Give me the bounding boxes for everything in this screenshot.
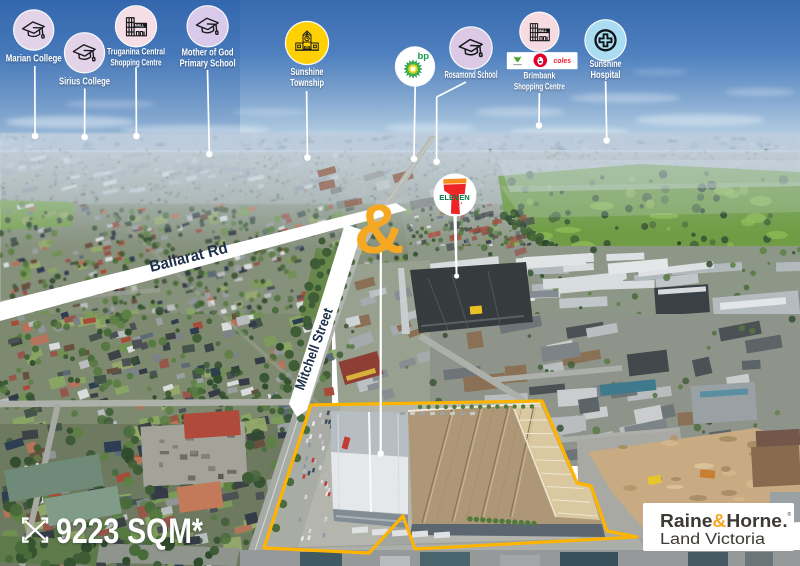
svg-text:Brimbank: Brimbank <box>523 71 556 82</box>
svg-text:Shopping Centre: Shopping Centre <box>111 57 162 67</box>
svg-text:9223 SQM*: 9223 SQM* <box>56 512 203 551</box>
svg-text:Sirius College: Sirius College <box>59 76 110 88</box>
svg-text:®: ® <box>788 511 792 518</box>
svg-text:Hospital: Hospital <box>591 69 621 81</box>
svg-text:MALL: MALL <box>135 24 144 28</box>
svg-text:Truganina Central: Truganina Central <box>107 47 165 57</box>
svg-text:Marian College: Marian College <box>6 53 62 65</box>
svg-text:bp: bp <box>418 51 430 62</box>
svg-text:Shopping Centre: Shopping Centre <box>514 81 565 92</box>
svg-text:Township: Township <box>290 77 324 89</box>
svg-text:Rosamond School: Rosamond School <box>445 69 498 81</box>
svg-text:&: & <box>354 190 405 268</box>
svg-text:Primary School: Primary School <box>180 57 236 69</box>
svg-text:ELEVEN: ELEVEN <box>439 195 470 202</box>
svg-text:MALL: MALL <box>538 29 547 33</box>
svg-text:Land Victoria: Land Victoria <box>660 531 765 548</box>
svg-text:Raine&Horne: Raine&Horne <box>660 511 782 531</box>
svg-text:coles: coles <box>554 58 572 65</box>
